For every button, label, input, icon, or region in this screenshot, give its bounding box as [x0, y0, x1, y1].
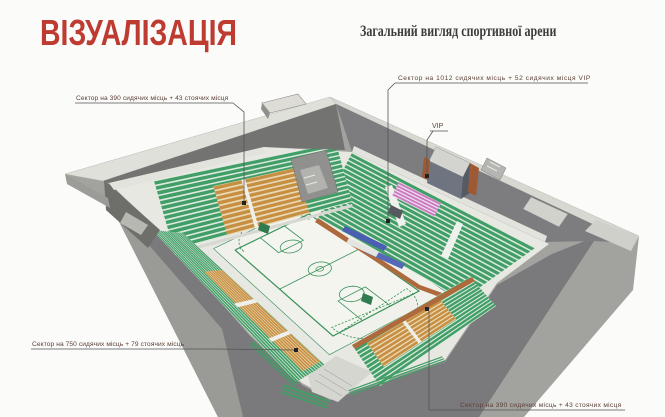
svg-text:VIP: VIP: [432, 123, 444, 130]
svg-text:Сектор на 750 сидячих місць +: Сектор на 750 сидячих місць + 79 стоячих…: [32, 340, 185, 348]
svg-text:Сектор на 390 сидячих місць +: Сектор на 390 сидячих місць + 43 стоячих…: [76, 94, 229, 102]
svg-text:Сектор на 1012 сидячих місць +: Сектор на 1012 сидячих місць + 52 сидячи…: [398, 74, 591, 82]
svg-text:Сектор на 390 сидячих місць +: Сектор на 390 сидячих місць + 43 стоячих…: [460, 401, 622, 409]
